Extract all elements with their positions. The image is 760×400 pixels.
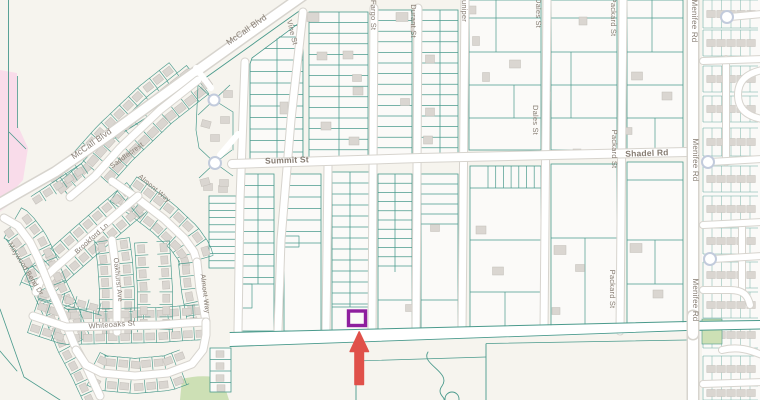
- svg-text:Menifee Rd: Menifee Rd: [691, 139, 700, 182]
- svg-text:Fargo St: Fargo St: [369, 0, 378, 31]
- svg-text:Packard St: Packard St: [610, 130, 619, 169]
- svg-text:Menifee Rd: Menifee Rd: [690, 0, 699, 42]
- svg-text:Juniper: Juniper: [460, 0, 469, 22]
- svg-text:Shadel Rd: Shadel Rd: [625, 147, 669, 159]
- svg-text:Packard St: Packard St: [609, 0, 618, 37]
- svg-text:Dales St: Dales St: [531, 105, 540, 136]
- svg-text:Summit St: Summit St: [265, 154, 309, 166]
- svg-text:Menifee Rd: Menifee Rd: [691, 279, 700, 322]
- svg-text:Packard St: Packard St: [608, 270, 617, 309]
- svg-text:Dales St: Dales St: [534, 0, 543, 29]
- svg-text:Durant St: Durant St: [409, 4, 418, 38]
